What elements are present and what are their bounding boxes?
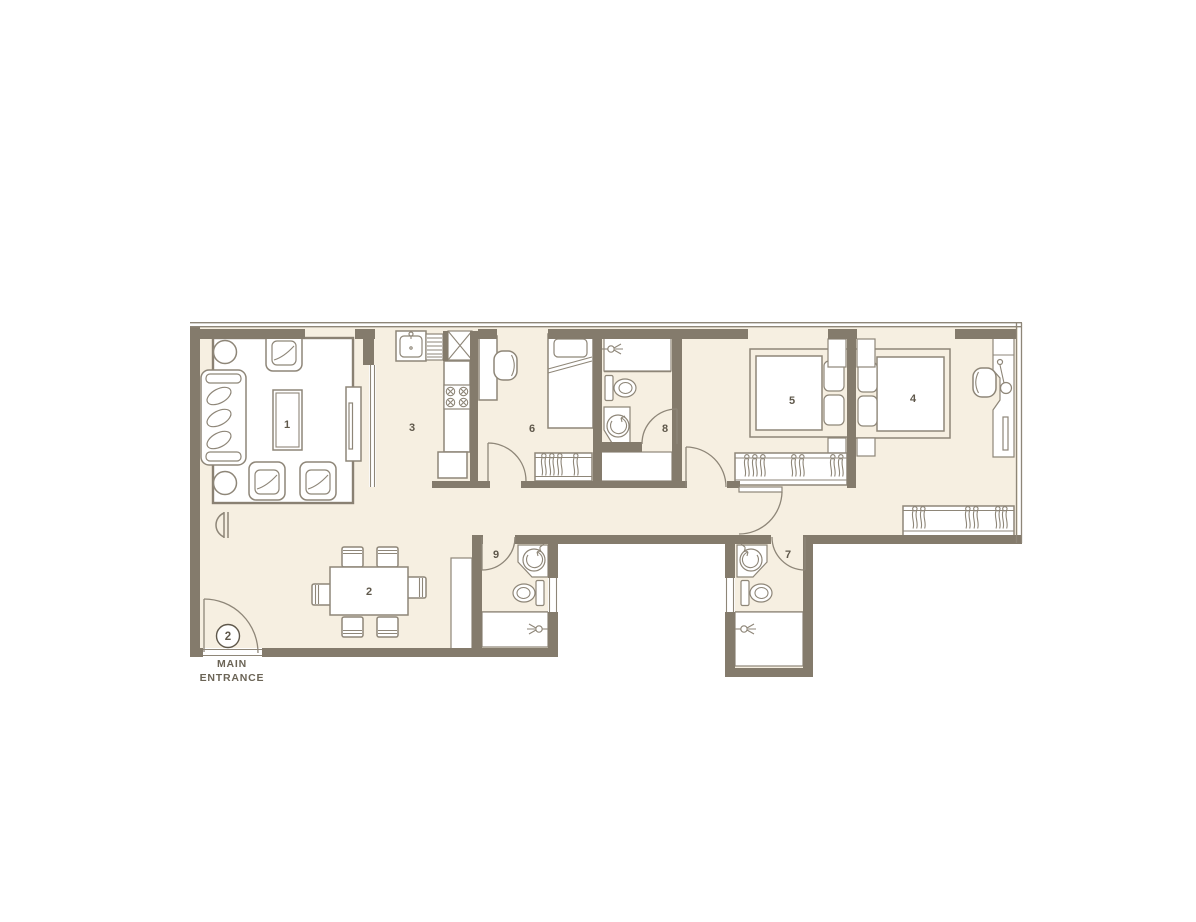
single-bed bbox=[548, 334, 593, 428]
desk-chair bbox=[494, 351, 517, 380]
nightstand bbox=[857, 438, 875, 456]
entrance-label-line1: MAIN bbox=[217, 658, 247, 670]
nightstand bbox=[828, 339, 846, 367]
tv-unit bbox=[346, 387, 361, 461]
entrance-label-line2: ENTRANCE bbox=[200, 672, 265, 684]
armchair bbox=[249, 462, 285, 500]
room-label-bedroom-left: 6 bbox=[529, 423, 535, 435]
dining-chair bbox=[342, 547, 363, 567]
nightstand bbox=[857, 339, 875, 367]
round-side-table bbox=[214, 341, 237, 364]
dining-chair bbox=[377, 547, 398, 567]
entrance-badge-number: 2 bbox=[225, 631, 231, 643]
washbasin bbox=[523, 549, 545, 571]
wardrobe bbox=[735, 453, 847, 485]
dining-chair bbox=[342, 617, 363, 637]
kitchen-sink bbox=[396, 331, 426, 361]
service-duct bbox=[448, 331, 472, 360]
room-label-dining: 2 bbox=[366, 586, 372, 598]
room-label-bathroom-middle: 8 bbox=[662, 423, 668, 435]
dining-chair bbox=[312, 584, 332, 605]
room-label-bathroom-right: 7 bbox=[785, 549, 791, 561]
room-label-kitchen: 3 bbox=[409, 422, 415, 434]
washbasin bbox=[607, 415, 629, 437]
gas-hob bbox=[444, 385, 470, 409]
shower bbox=[735, 612, 803, 666]
wardrobe bbox=[903, 506, 1014, 536]
room-label-bedroom-right: 4 bbox=[910, 393, 917, 405]
room-label-living: 1 bbox=[284, 419, 290, 431]
utility-area bbox=[598, 452, 672, 481]
washbasin bbox=[740, 549, 762, 571]
dining-chair bbox=[377, 617, 398, 637]
sofa bbox=[201, 370, 246, 465]
drainboard bbox=[426, 334, 443, 360]
dining-chair bbox=[406, 577, 426, 598]
glass-partition bbox=[369, 365, 376, 487]
tall-cabinet bbox=[451, 558, 472, 650]
refrigerator bbox=[438, 452, 467, 478]
floor-plan: 1 2 3 4 5 6 7 8 9 2 MAIN ENTRANCE bbox=[0, 0, 1196, 922]
armchair bbox=[300, 462, 336, 500]
wardrobe bbox=[535, 453, 592, 481]
round-side-table bbox=[214, 472, 237, 495]
room-label-bathroom-left: 9 bbox=[493, 549, 499, 561]
room-label-bedroom-middle: 5 bbox=[789, 395, 795, 407]
shower bbox=[604, 338, 671, 371]
stool bbox=[973, 368, 996, 397]
